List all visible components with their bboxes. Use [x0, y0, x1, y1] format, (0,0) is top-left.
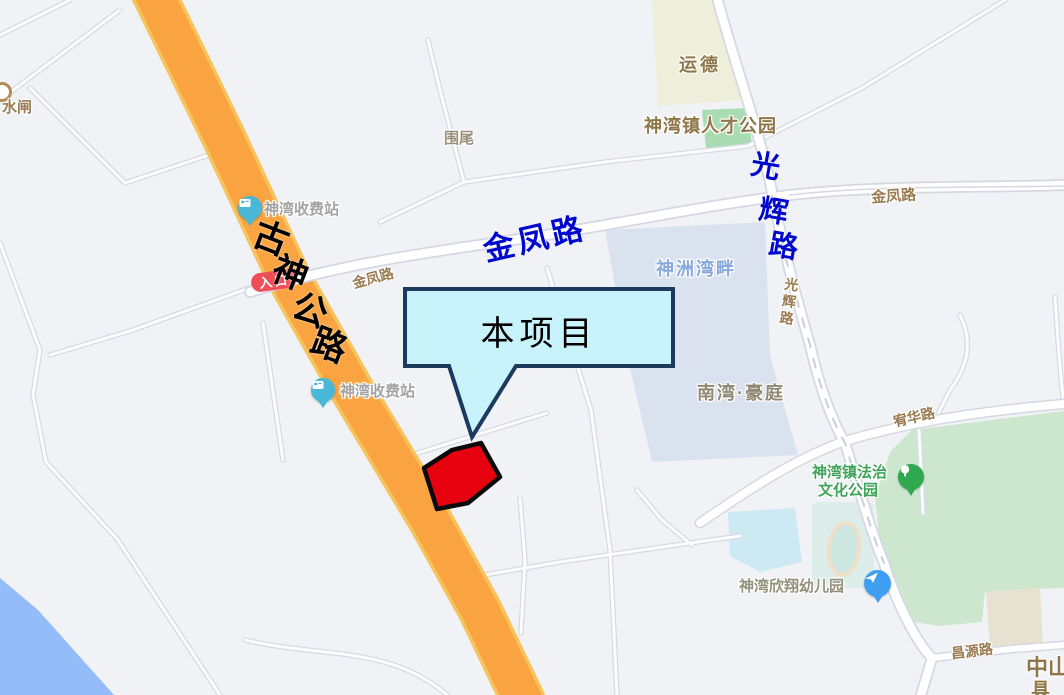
label-kindergarten: 神湾欣翔幼儿园 [739, 575, 844, 596]
toll-booth-icon [238, 196, 252, 210]
kindergarten-pin[interactable] [864, 570, 891, 597]
block-nanwan-haoting [628, 355, 798, 462]
tree-icon [898, 464, 912, 478]
label-fazhi-park-line2: 文化公园 [818, 479, 878, 500]
label-jinfeng-road-east: 金凤路 [870, 183, 916, 207]
toll-station-pin-north[interactable] [238, 196, 262, 220]
label-shuizha: 水闸 [2, 96, 32, 117]
paper-plane-icon [864, 570, 879, 585]
label-yunde: 运德 [679, 51, 721, 77]
block-beige-building [986, 588, 1043, 649]
park-pin[interactable] [898, 464, 924, 490]
map-canvas[interactable]: 水闸 围尾 运德 神湾镇人才公园 神洲湾畔 南湾·豪庭 神湾镇法治 文化公园 神… [0, 0, 1064, 695]
label-toll-south: 神湾收费站 [340, 380, 415, 401]
toll-booth-icon [311, 378, 325, 392]
callout-label: 本项目 [407, 306, 671, 355]
label-nanwan-haoting: 南湾·豪庭 [697, 379, 785, 405]
label-shenzhou-wanpan: 神洲湾畔 [656, 255, 736, 281]
toll-station-pin-south[interactable] [311, 378, 335, 402]
label-rencai-park: 神湾镇人才公园 [644, 112, 777, 138]
label-weiwei: 围尾 [444, 127, 474, 148]
label-zhongshan-partial: 具 [1031, 675, 1050, 695]
